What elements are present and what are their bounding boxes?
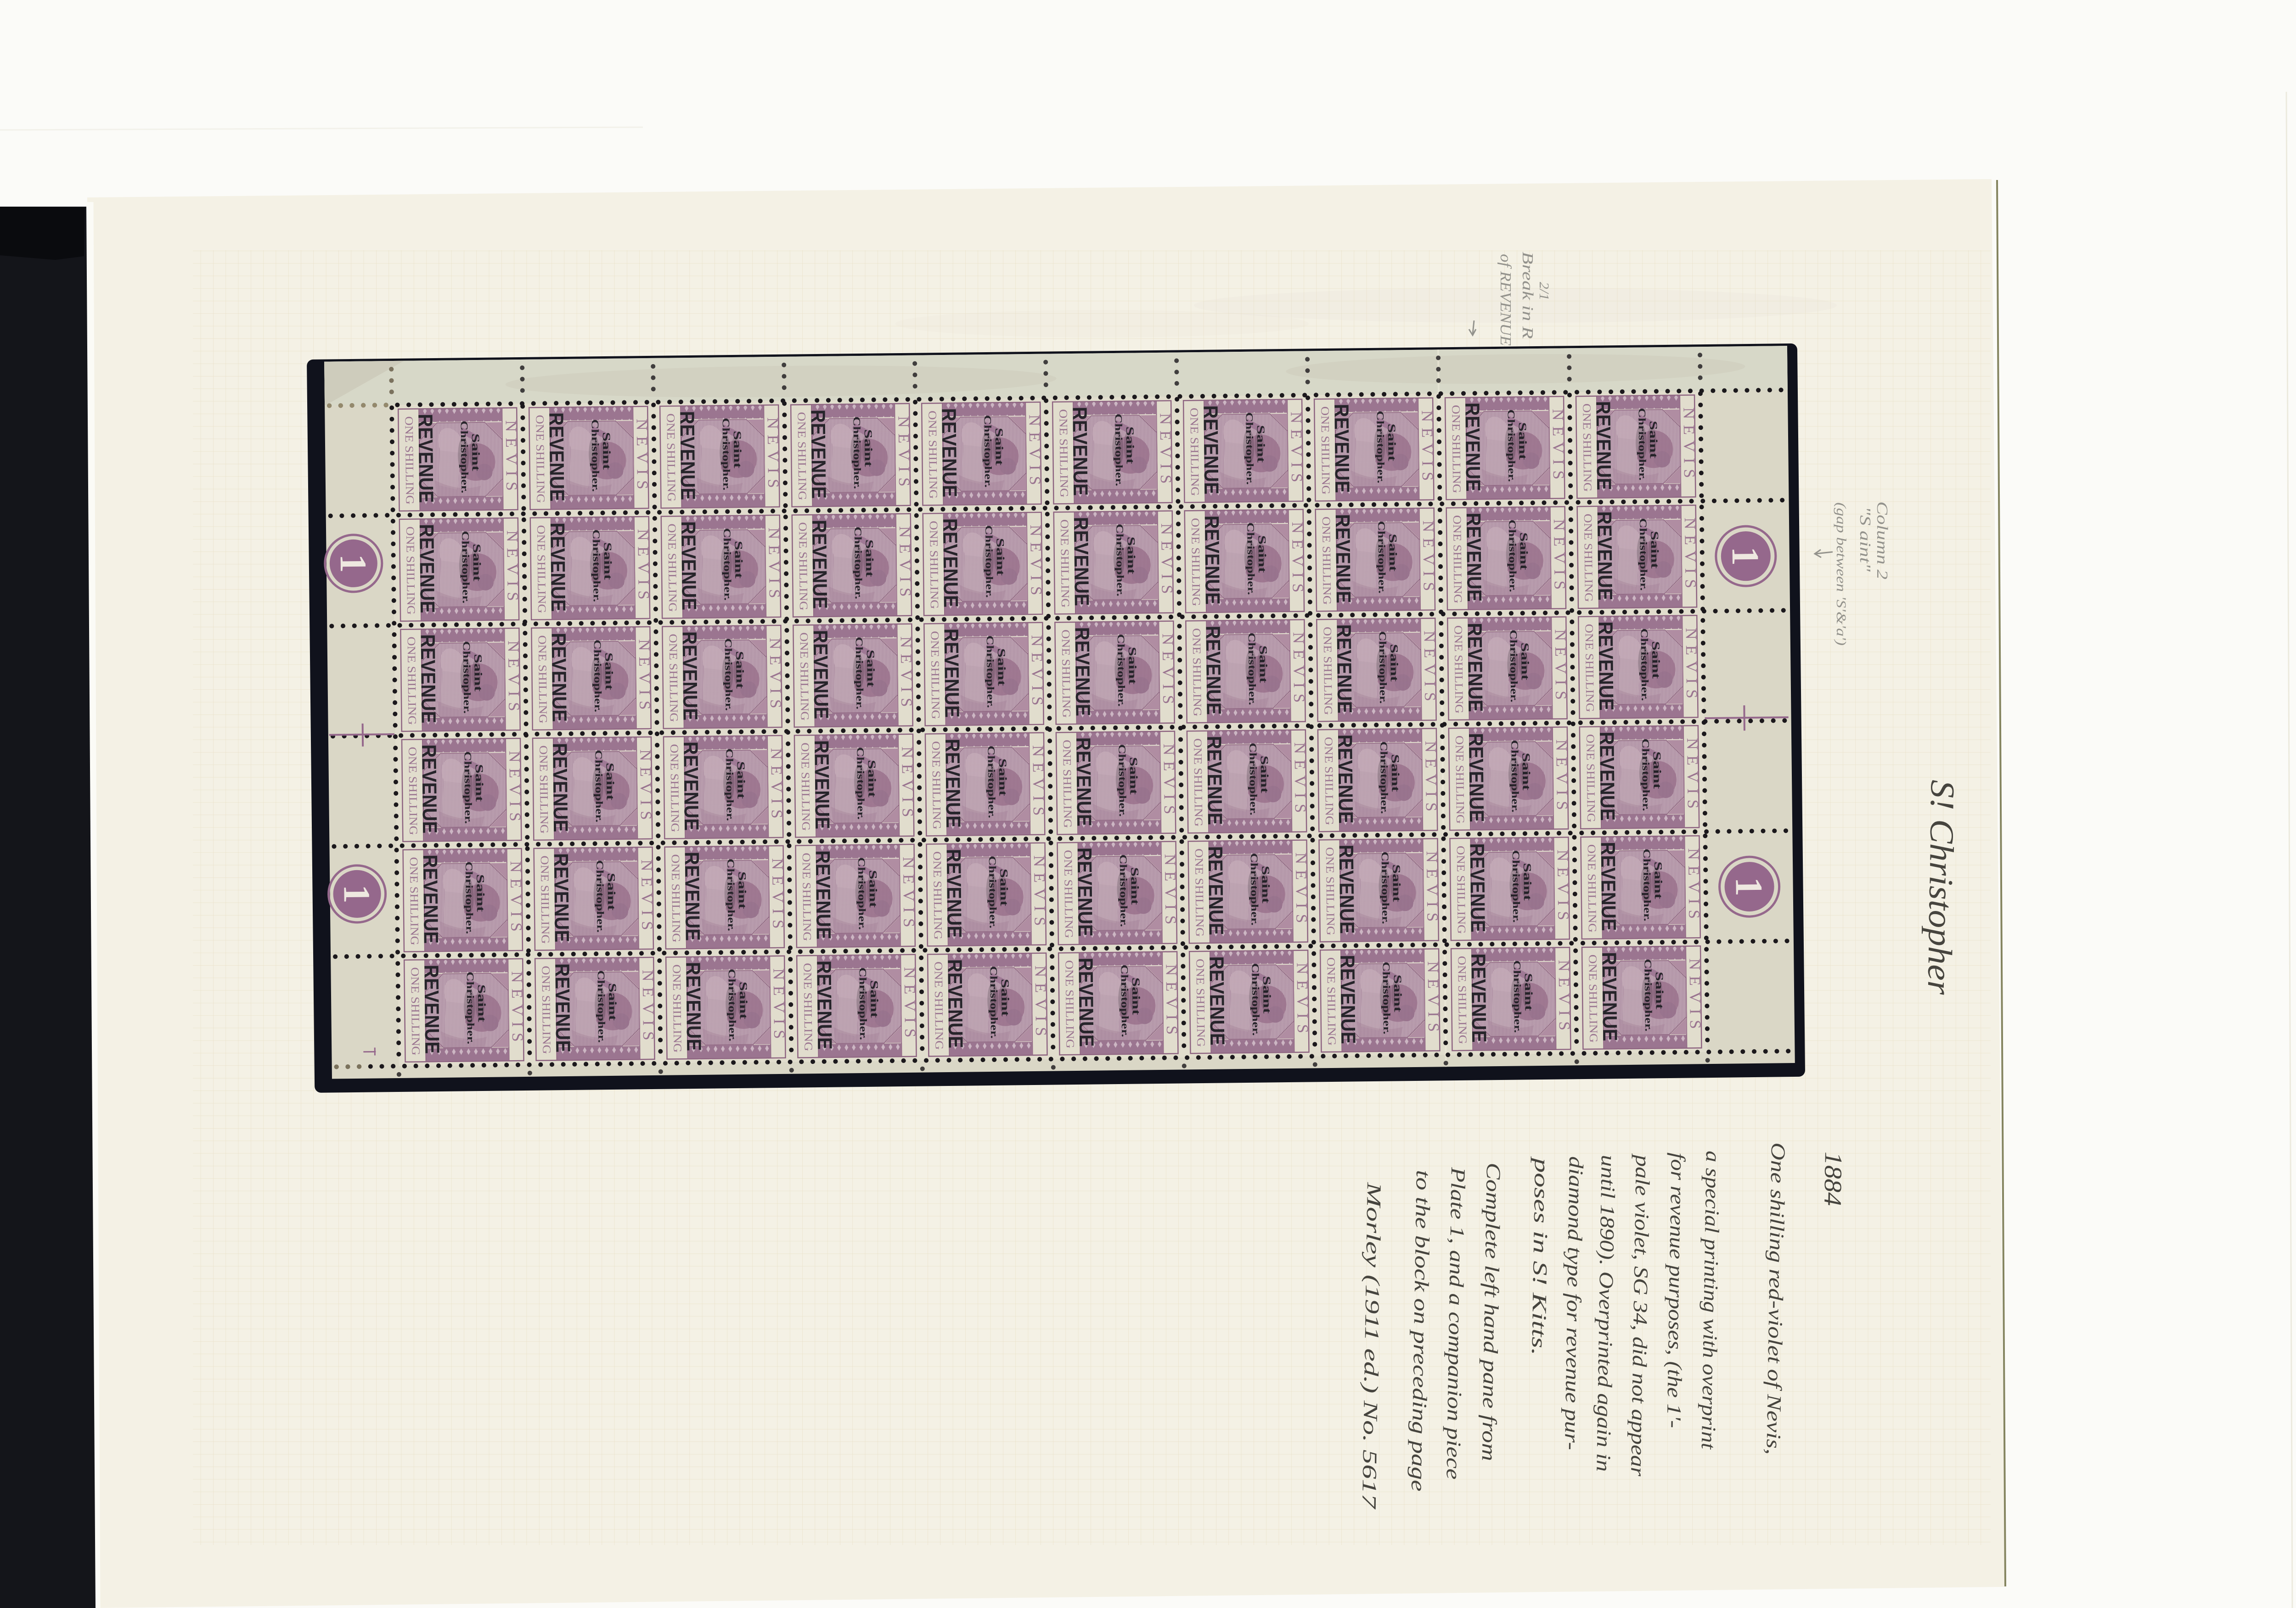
svg-text:a special printing with overpr: a special printing with overprint	[1697, 1151, 1724, 1451]
svg-text:for revenue purposes, (the 1'-: for revenue purposes, (the 1'-	[1663, 1153, 1689, 1428]
svg-text:S! Christopher: S! Christopher	[1920, 780, 1961, 996]
svg-text:"S aint": "S aint"	[1857, 506, 1874, 572]
svg-text:diamond type for revenue pur-: diamond type for revenue pur-	[1560, 1156, 1587, 1451]
svg-text:(gap between 'S'&'a'): (gap between 'S'&'a')	[1834, 502, 1849, 646]
svg-text:1884: 1884	[1819, 1152, 1847, 1206]
svg-text:1: 1	[1724, 546, 1767, 566]
svg-text:1: 1	[332, 554, 374, 573]
svg-text:Column 2: Column 2	[1874, 501, 1891, 579]
svg-text:1: 1	[336, 884, 377, 904]
svg-text:Complete left hand pane from: Complete left hand pane from	[1478, 1163, 1505, 1462]
svg-text:1: 1	[1727, 877, 1770, 897]
svg-text:poses in S! Kitts.: poses in S! Kitts.	[1527, 1156, 1553, 1355]
svg-text:Break in R: Break in R	[1519, 252, 1536, 339]
svg-text:2/1: 2/1	[1536, 282, 1552, 300]
svg-text:of REVENUE: of REVENUE	[1497, 254, 1514, 346]
